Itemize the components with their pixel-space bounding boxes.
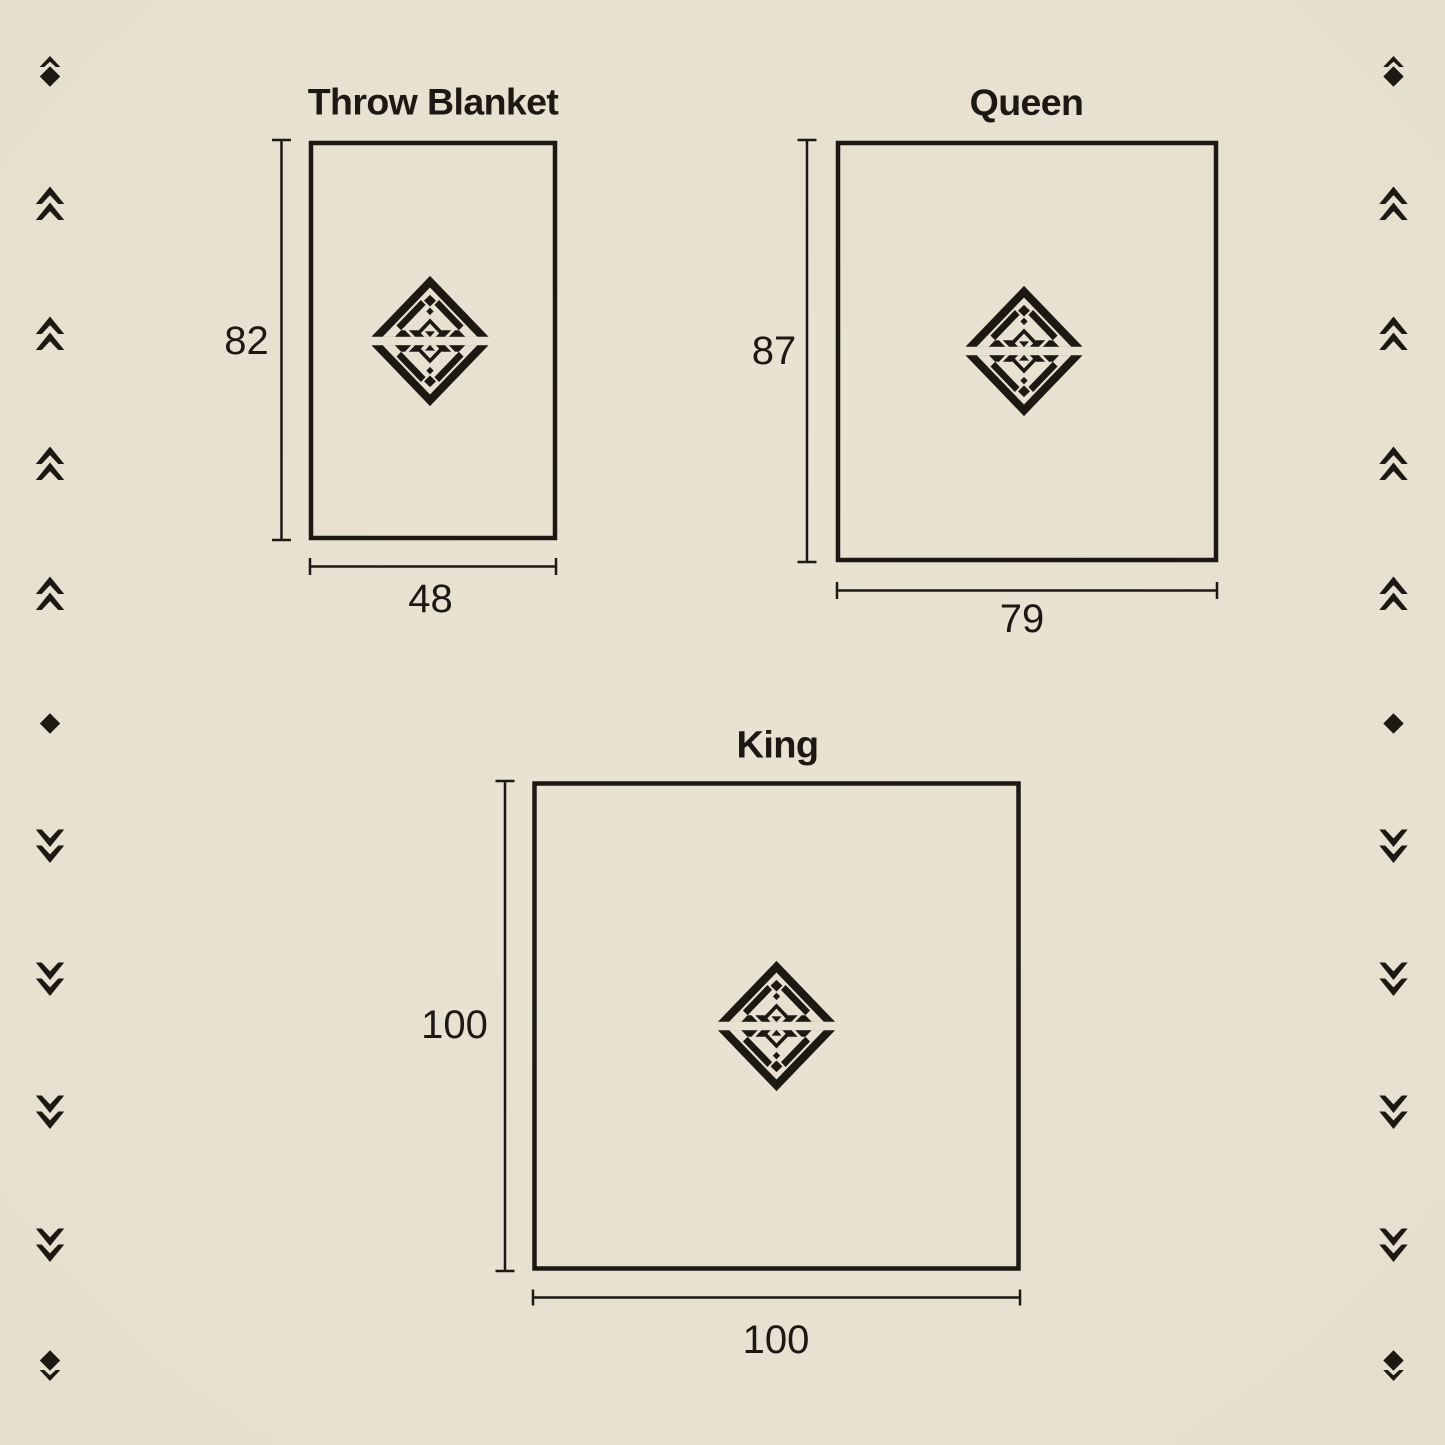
- svg-text:48: 48: [408, 577, 453, 621]
- svg-text:100: 100: [743, 1318, 810, 1362]
- svg-text:King: King: [736, 725, 818, 767]
- svg-text:Queen: Queen: [970, 81, 1084, 123]
- svg-text:79: 79: [1000, 597, 1045, 641]
- svg-text:82: 82: [224, 319, 269, 363]
- svg-text:100: 100: [421, 1003, 488, 1047]
- svg-text:87: 87: [752, 329, 797, 373]
- svg-text:Throw Blanket: Throw Blanket: [308, 81, 560, 123]
